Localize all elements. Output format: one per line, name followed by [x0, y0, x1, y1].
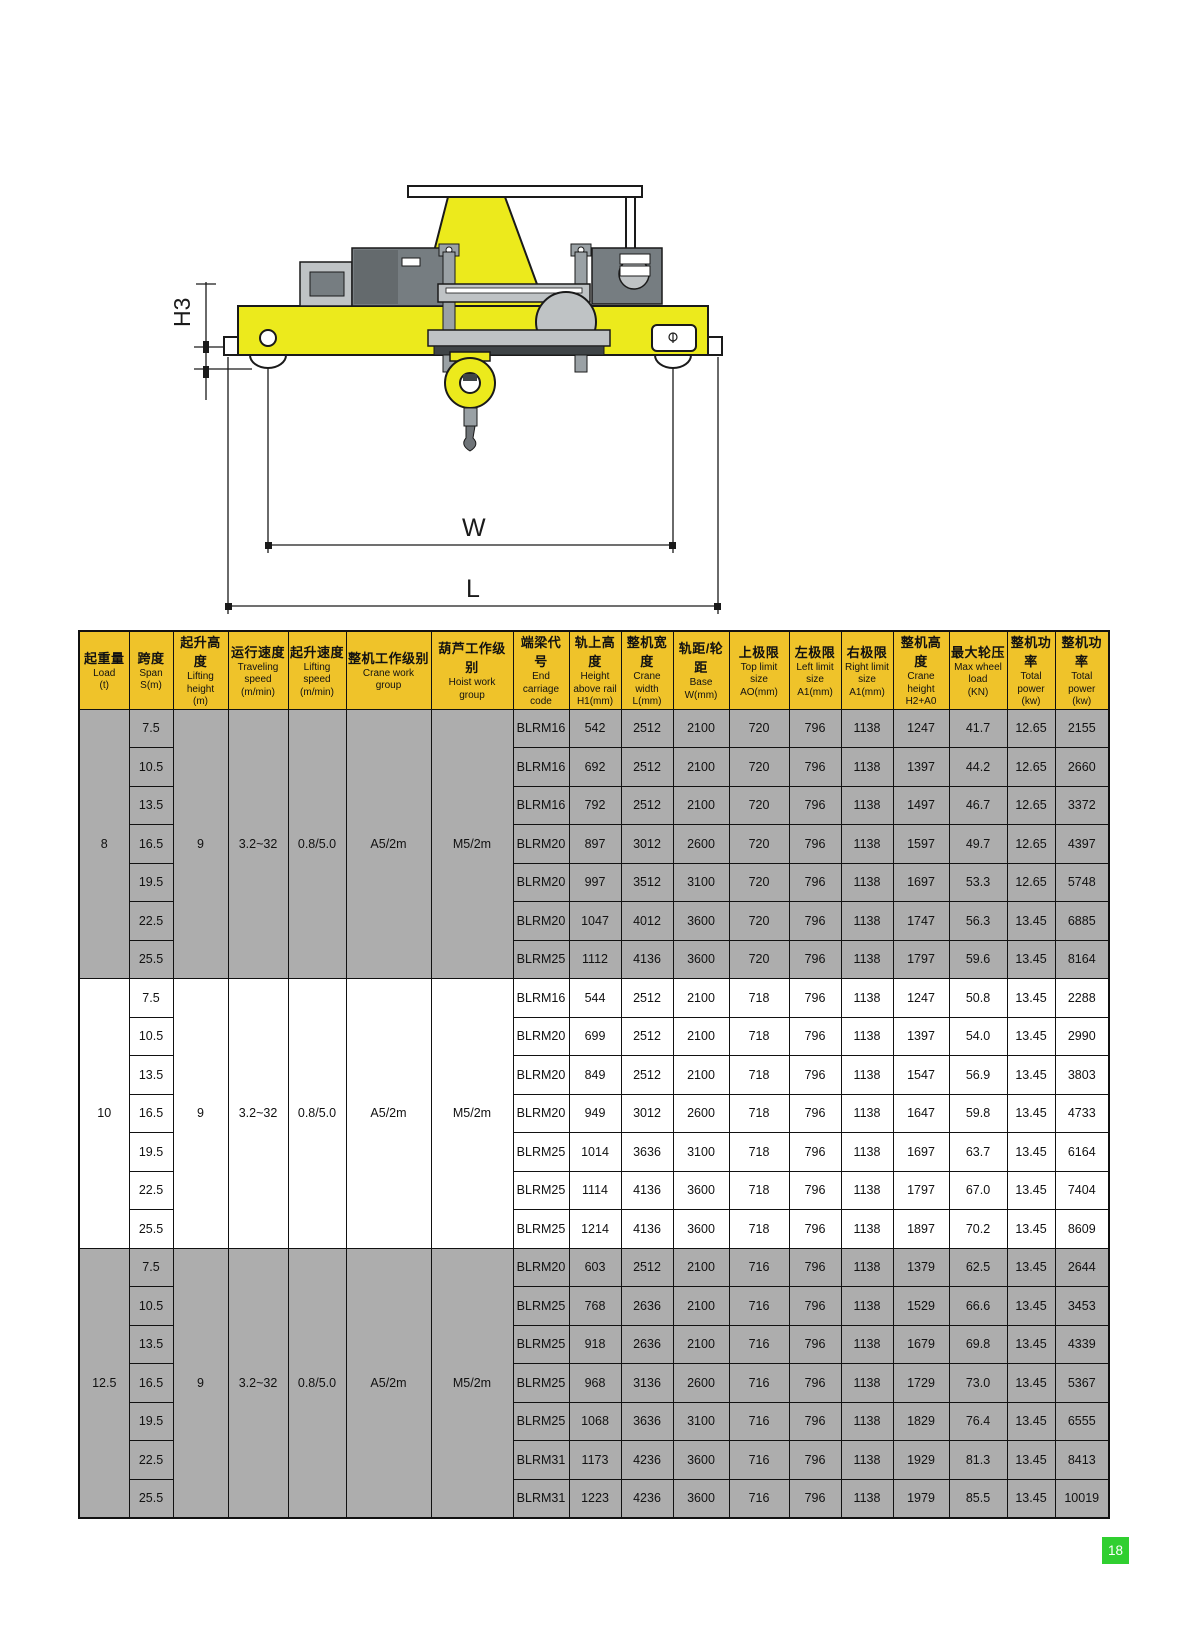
value-cell: 3136	[621, 1364, 673, 1403]
lifting-speed-cell: 0.8/5.0	[288, 709, 346, 979]
value-cell: 2100	[673, 1287, 729, 1326]
value-cell: 3100	[673, 1133, 729, 1172]
span-cell: 16.5	[129, 1364, 173, 1403]
value-cell: 2100	[673, 979, 729, 1018]
value-cell: 13.45	[1007, 1287, 1055, 1326]
value-cell: 12.65	[1007, 863, 1055, 902]
value-cell: 796	[789, 1094, 841, 1133]
value-cell: 73.0	[949, 1364, 1007, 1403]
value-cell: 718	[729, 1094, 789, 1133]
h3-tick-marker	[203, 366, 209, 378]
value-cell: 59.8	[949, 1094, 1007, 1133]
value-cell: 1829	[893, 1402, 949, 1441]
gearbox-vent	[402, 258, 420, 266]
column-header: 整机宽度Crane width L(mm)	[621, 631, 673, 709]
value-cell: BLRM25	[513, 1133, 569, 1172]
panel-plate	[620, 266, 650, 276]
value-cell: 603	[569, 1248, 621, 1287]
value-cell: 2100	[673, 709, 729, 748]
value-cell: 2644	[1055, 1248, 1109, 1287]
value-cell: 1138	[841, 1479, 893, 1518]
span-cell: 16.5	[129, 825, 173, 864]
value-cell: 718	[729, 979, 789, 1018]
value-cell: 2100	[673, 1056, 729, 1095]
value-cell: BLRM16	[513, 979, 569, 1018]
value-cell: 2100	[673, 748, 729, 787]
value-cell: 796	[789, 1287, 841, 1326]
value-cell: 968	[569, 1364, 621, 1403]
span-cell: 7.5	[129, 1248, 173, 1287]
value-cell: 76.4	[949, 1402, 1007, 1441]
value-cell: 12.65	[1007, 786, 1055, 825]
value-cell: 796	[789, 786, 841, 825]
w-dimension-label: W	[462, 514, 486, 542]
value-cell: 2100	[673, 786, 729, 825]
h3-dimension-label: H3	[169, 298, 195, 327]
value-cell: 720	[729, 786, 789, 825]
span-cell: 22.5	[129, 902, 173, 941]
value-cell: 13.45	[1007, 1094, 1055, 1133]
lifting-speed-cell: 0.8/5.0	[288, 1248, 346, 1518]
column-header: 起升高度Lifting height (m)	[173, 631, 228, 709]
value-cell: BLRM31	[513, 1441, 569, 1480]
right-wheel-arch	[655, 355, 691, 368]
value-cell: 5748	[1055, 863, 1109, 902]
hoist-work-group-cell: M5/2m	[431, 979, 513, 1249]
value-cell: 1138	[841, 1441, 893, 1480]
value-cell: 4136	[621, 940, 673, 979]
value-cell: 6555	[1055, 1402, 1109, 1441]
value-cell: 2512	[621, 709, 673, 748]
crane-work-group-cell: A5/2m	[346, 979, 431, 1249]
value-cell: BLRM25	[513, 1364, 569, 1403]
value-cell: 2512	[621, 1056, 673, 1095]
value-cell: 1112	[569, 940, 621, 979]
value-cell: 1547	[893, 1056, 949, 1095]
value-cell: 918	[569, 1325, 621, 1364]
value-cell: 53.3	[949, 863, 1007, 902]
value-cell: 796	[789, 902, 841, 941]
value-cell: 796	[789, 979, 841, 1018]
value-cell: 1138	[841, 1402, 893, 1441]
span-cell: 22.5	[129, 1441, 173, 1480]
value-cell: BLRM25	[513, 1325, 569, 1364]
table-row: 107.593.2~320.8/5.0A5/2mM5/2mBLRM1654425…	[79, 979, 1109, 1018]
left-wheel-arch	[250, 355, 286, 368]
value-cell: 796	[789, 1441, 841, 1480]
traveling-speed-cell: 3.2~32	[228, 1248, 288, 1518]
value-cell: 69.8	[949, 1325, 1007, 1364]
value-cell: 796	[789, 1017, 841, 1056]
value-cell: 56.9	[949, 1056, 1007, 1095]
span-cell: 16.5	[129, 1094, 173, 1133]
column-header: 葫芦工作级别Hoist work group	[431, 631, 513, 709]
value-cell: 1497	[893, 786, 949, 825]
value-cell: 2660	[1055, 748, 1109, 787]
span-cell: 10.5	[129, 1287, 173, 1326]
value-cell: 3600	[673, 902, 729, 941]
value-cell: 4236	[621, 1479, 673, 1518]
column-header: 整机功率Total power (kw)	[1055, 631, 1109, 709]
value-cell: 849	[569, 1056, 621, 1095]
value-cell: 3100	[673, 863, 729, 902]
hoist-work-group-cell: M5/2m	[431, 1248, 513, 1518]
dim-end-marker	[265, 542, 272, 549]
value-cell: 1138	[841, 748, 893, 787]
value-cell: 4136	[621, 1171, 673, 1210]
value-cell: 3012	[621, 1094, 673, 1133]
column-header: 跨度Span S(m)	[129, 631, 173, 709]
value-cell: 3636	[621, 1133, 673, 1172]
value-cell: BLRM16	[513, 748, 569, 787]
value-cell: 81.3	[949, 1441, 1007, 1480]
value-cell: 1747	[893, 902, 949, 941]
value-cell: 1138	[841, 1248, 893, 1287]
value-cell: 66.6	[949, 1287, 1007, 1326]
dim-end-marker	[225, 603, 232, 610]
value-cell: 1597	[893, 825, 949, 864]
hook-stem	[464, 408, 477, 426]
value-cell: BLRM25	[513, 1287, 569, 1326]
value-cell: 1929	[893, 1441, 949, 1480]
span-cell: 19.5	[129, 863, 173, 902]
page-number-badge: 18	[1102, 1537, 1129, 1564]
hoist-motor-detail	[310, 272, 344, 296]
value-cell: 49.7	[949, 825, 1007, 864]
dim-end-marker	[714, 603, 721, 610]
value-cell: 718	[729, 1171, 789, 1210]
value-cell: 1214	[569, 1210, 621, 1249]
value-cell: 13.45	[1007, 1056, 1055, 1095]
value-cell: 718	[729, 1133, 789, 1172]
value-cell: 54.0	[949, 1017, 1007, 1056]
hook-pulley-key	[463, 374, 477, 381]
value-cell: 3453	[1055, 1287, 1109, 1326]
column-header: 轨距/轮距Base W(mm)	[673, 631, 729, 709]
value-cell: 2512	[621, 1017, 673, 1056]
value-cell: 720	[729, 709, 789, 748]
value-cell: 796	[789, 1056, 841, 1095]
crane-spec-table: 起重量Load (t)跨度Span S(m)起升高度Lifting height…	[78, 630, 1110, 1519]
value-cell: 62.5	[949, 1248, 1007, 1287]
h3-tick-marker	[203, 341, 209, 353]
l-dimension-label: L	[466, 575, 480, 603]
value-cell: 3600	[673, 1479, 729, 1518]
value-cell: 4012	[621, 902, 673, 941]
dim-end-marker	[669, 542, 676, 549]
value-cell: 718	[729, 1056, 789, 1095]
trolley-cross-bar	[428, 330, 610, 346]
value-cell: 949	[569, 1094, 621, 1133]
span-cell: 13.5	[129, 1056, 173, 1095]
value-cell: 3600	[673, 1441, 729, 1480]
value-cell: 1138	[841, 1056, 893, 1095]
value-cell: 1047	[569, 902, 621, 941]
value-cell: 3636	[621, 1402, 673, 1441]
value-cell: 13.45	[1007, 1325, 1055, 1364]
value-cell: 13.45	[1007, 1402, 1055, 1441]
value-cell: 796	[789, 940, 841, 979]
crane-diagram: W L H3	[140, 85, 790, 630]
value-cell: 4136	[621, 1210, 673, 1249]
span-cell: 7.5	[129, 709, 173, 748]
value-cell: BLRM20	[513, 825, 569, 864]
lifting-height-cell: 9	[173, 1248, 228, 1518]
value-cell: 2512	[621, 979, 673, 1018]
value-cell: 44.2	[949, 748, 1007, 787]
value-cell: 796	[789, 1479, 841, 1518]
value-cell: 1138	[841, 825, 893, 864]
value-cell: 46.7	[949, 786, 1007, 825]
value-cell: BLRM20	[513, 902, 569, 941]
value-cell: 8164	[1055, 940, 1109, 979]
value-cell: 63.7	[949, 1133, 1007, 1172]
value-cell: 2512	[621, 748, 673, 787]
value-cell: 720	[729, 902, 789, 941]
value-cell: 2990	[1055, 1017, 1109, 1056]
span-cell: 25.5	[129, 1210, 173, 1249]
column-header: 整机功率Total power (kw)	[1007, 631, 1055, 709]
value-cell: 1379	[893, 1248, 949, 1287]
value-cell: BLRM20	[513, 1056, 569, 1095]
value-cell: 1247	[893, 979, 949, 1018]
value-cell: 718	[729, 1210, 789, 1249]
value-cell: 2512	[621, 1248, 673, 1287]
value-cell: 13.45	[1007, 1248, 1055, 1287]
traveling-speed-cell: 3.2~32	[228, 979, 288, 1249]
value-cell: 1679	[893, 1325, 949, 1364]
column-header: 左极限Left limit size A1(mm)	[789, 631, 841, 709]
value-cell: 1138	[841, 979, 893, 1018]
value-cell: 1223	[569, 1479, 621, 1518]
value-cell: 796	[789, 748, 841, 787]
value-cell: 716	[729, 1402, 789, 1441]
value-cell: 85.5	[949, 1479, 1007, 1518]
value-cell: 2100	[673, 1248, 729, 1287]
span-cell: 25.5	[129, 1479, 173, 1518]
column-header: 最大轮压Max wheel load (KN)	[949, 631, 1007, 709]
column-header: 起升速度Lifting speed (m/min)	[288, 631, 346, 709]
hoist-gearbox-detail	[354, 250, 398, 304]
girder-left-tab	[224, 337, 238, 355]
value-cell: 1529	[893, 1287, 949, 1326]
value-cell: 10019	[1055, 1479, 1109, 1518]
column-header: 轨上高度Height above rail H1(mm)	[569, 631, 621, 709]
value-cell: 3600	[673, 1171, 729, 1210]
value-cell: 13.45	[1007, 1171, 1055, 1210]
traveling-speed-cell: 3.2~32	[228, 709, 288, 979]
span-cell: 13.5	[129, 786, 173, 825]
value-cell: 1138	[841, 1133, 893, 1172]
table-row: 87.593.2~320.8/5.0A5/2mM5/2mBLRM16542251…	[79, 709, 1109, 748]
value-cell: 8413	[1055, 1441, 1109, 1480]
value-cell: 716	[729, 1364, 789, 1403]
value-cell: 1397	[893, 1017, 949, 1056]
value-cell: 1068	[569, 1402, 621, 1441]
value-cell: 3012	[621, 825, 673, 864]
spec-table-header: 起重量Load (t)跨度Span S(m)起升高度Lifting height…	[79, 631, 1109, 709]
value-cell: 1897	[893, 1210, 949, 1249]
value-cell: 6885	[1055, 902, 1109, 941]
value-cell: 796	[789, 1133, 841, 1172]
value-cell: 1014	[569, 1133, 621, 1172]
column-header: 起重量Load (t)	[79, 631, 129, 709]
value-cell: 13.45	[1007, 1210, 1055, 1249]
value-cell: 1138	[841, 940, 893, 979]
value-cell: 41.7	[949, 709, 1007, 748]
value-cell: 796	[789, 1402, 841, 1441]
value-cell: 1138	[841, 786, 893, 825]
crane-work-group-cell: A5/2m	[346, 709, 431, 979]
lifting-height-cell: 9	[173, 979, 228, 1249]
value-cell: 70.2	[949, 1210, 1007, 1249]
value-cell: 792	[569, 786, 621, 825]
value-cell: 1697	[893, 1133, 949, 1172]
value-cell: 12.65	[1007, 825, 1055, 864]
value-cell: BLRM20	[513, 863, 569, 902]
value-cell: 56.3	[949, 902, 1007, 941]
value-cell: BLRM31	[513, 1479, 569, 1518]
span-cell: 13.5	[129, 1325, 173, 1364]
value-cell: 720	[729, 748, 789, 787]
span-cell: 7.5	[129, 979, 173, 1018]
value-cell: 997	[569, 863, 621, 902]
value-cell: 1138	[841, 863, 893, 902]
value-cell: 1138	[841, 1325, 893, 1364]
value-cell: 4339	[1055, 1325, 1109, 1364]
value-cell: 796	[789, 863, 841, 902]
value-cell: BLRM25	[513, 1402, 569, 1441]
value-cell: 1173	[569, 1441, 621, 1480]
value-cell: 1697	[893, 863, 949, 902]
value-cell: 716	[729, 1479, 789, 1518]
left-wheel	[260, 330, 276, 346]
value-cell: 716	[729, 1287, 789, 1326]
value-cell: 13.45	[1007, 940, 1055, 979]
load-cell: 12.5	[79, 1248, 129, 1518]
value-cell: 1979	[893, 1479, 949, 1518]
crane-work-group-cell: A5/2m	[346, 1248, 431, 1518]
value-cell: 2600	[673, 825, 729, 864]
value-cell: 67.0	[949, 1171, 1007, 1210]
value-cell: 13.45	[1007, 1017, 1055, 1056]
value-cell: 720	[729, 940, 789, 979]
value-cell: 1138	[841, 1364, 893, 1403]
value-cell: 2636	[621, 1325, 673, 1364]
value-cell: 1138	[841, 709, 893, 748]
value-cell: 2155	[1055, 709, 1109, 748]
value-cell: 3100	[673, 1402, 729, 1441]
column-header: 上极限Top limit size AO(mm)	[729, 631, 789, 709]
load-cell: 10	[79, 979, 129, 1249]
value-cell: 2512	[621, 786, 673, 825]
catalog-page: W L H3	[0, 0, 1200, 1639]
column-header: 右极限Right limit size A1(mm)	[841, 631, 893, 709]
lifting-speed-cell: 0.8/5.0	[288, 979, 346, 1249]
value-cell: BLRM25	[513, 940, 569, 979]
value-cell: 12.65	[1007, 709, 1055, 748]
value-cell: 13.45	[1007, 1441, 1055, 1480]
span-cell: 10.5	[129, 748, 173, 787]
span-cell: 10.5	[129, 1017, 173, 1056]
value-cell: 1397	[893, 748, 949, 787]
column-header: 端梁代号End carriage code	[513, 631, 569, 709]
hoist-work-group-cell: M5/2m	[431, 709, 513, 979]
value-cell: 50.8	[949, 979, 1007, 1018]
value-cell: 3512	[621, 863, 673, 902]
value-cell: 2100	[673, 1325, 729, 1364]
value-cell: 1729	[893, 1364, 949, 1403]
value-cell: 4236	[621, 1441, 673, 1480]
value-cell: 2600	[673, 1364, 729, 1403]
lifting-height-cell: 9	[173, 709, 228, 979]
value-cell: 1138	[841, 1287, 893, 1326]
value-cell: BLRM20	[513, 1094, 569, 1133]
value-cell: 796	[789, 825, 841, 864]
value-cell: 796	[789, 1171, 841, 1210]
value-cell: 796	[789, 1248, 841, 1287]
value-cell: 716	[729, 1325, 789, 1364]
value-cell: 1138	[841, 1171, 893, 1210]
panel-plate	[620, 254, 650, 264]
value-cell: 3600	[673, 940, 729, 979]
value-cell: 1647	[893, 1094, 949, 1133]
value-cell: 1138	[841, 1017, 893, 1056]
value-cell: 59.6	[949, 940, 1007, 979]
value-cell: 796	[789, 1325, 841, 1364]
column-header: 整机工作级别Crane work group	[346, 631, 431, 709]
value-cell: BLRM25	[513, 1210, 569, 1249]
value-cell: 3803	[1055, 1056, 1109, 1095]
walkway-bar	[408, 186, 642, 197]
value-cell: 768	[569, 1287, 621, 1326]
value-cell: 718	[729, 1017, 789, 1056]
value-cell: 1114	[569, 1171, 621, 1210]
value-cell: 6164	[1055, 1133, 1109, 1172]
value-cell: 5367	[1055, 1364, 1109, 1403]
value-cell: 2636	[621, 1287, 673, 1326]
span-cell: 19.5	[129, 1402, 173, 1441]
span-cell: 22.5	[129, 1171, 173, 1210]
value-cell: 2100	[673, 1017, 729, 1056]
table-row: 12.57.593.2~320.8/5.0A5/2mM5/2mBLRM20603…	[79, 1248, 1109, 1287]
value-cell: 4397	[1055, 825, 1109, 864]
value-cell: 13.45	[1007, 902, 1055, 941]
column-header: 运行速度Traveling speed (m/min)	[228, 631, 288, 709]
value-cell: 692	[569, 748, 621, 787]
value-cell: 12.65	[1007, 748, 1055, 787]
value-cell: 1247	[893, 709, 949, 748]
value-cell: 542	[569, 709, 621, 748]
value-cell: 1138	[841, 1094, 893, 1133]
value-cell: 13.45	[1007, 979, 1055, 1018]
column-header: 整机高度Crane height H2+A0	[893, 631, 949, 709]
value-cell: 13.45	[1007, 1479, 1055, 1518]
value-cell: BLRM20	[513, 1248, 569, 1287]
value-cell: 897	[569, 825, 621, 864]
value-cell: 2288	[1055, 979, 1109, 1018]
value-cell: 1138	[841, 902, 893, 941]
value-cell: 7404	[1055, 1171, 1109, 1210]
value-cell: 716	[729, 1248, 789, 1287]
value-cell: 8609	[1055, 1210, 1109, 1249]
value-cell: 796	[789, 1364, 841, 1403]
value-cell: 13.45	[1007, 1133, 1055, 1172]
value-cell: BLRM20	[513, 1017, 569, 1056]
value-cell: 1797	[893, 940, 949, 979]
value-cell: 716	[729, 1441, 789, 1480]
value-cell: 720	[729, 863, 789, 902]
